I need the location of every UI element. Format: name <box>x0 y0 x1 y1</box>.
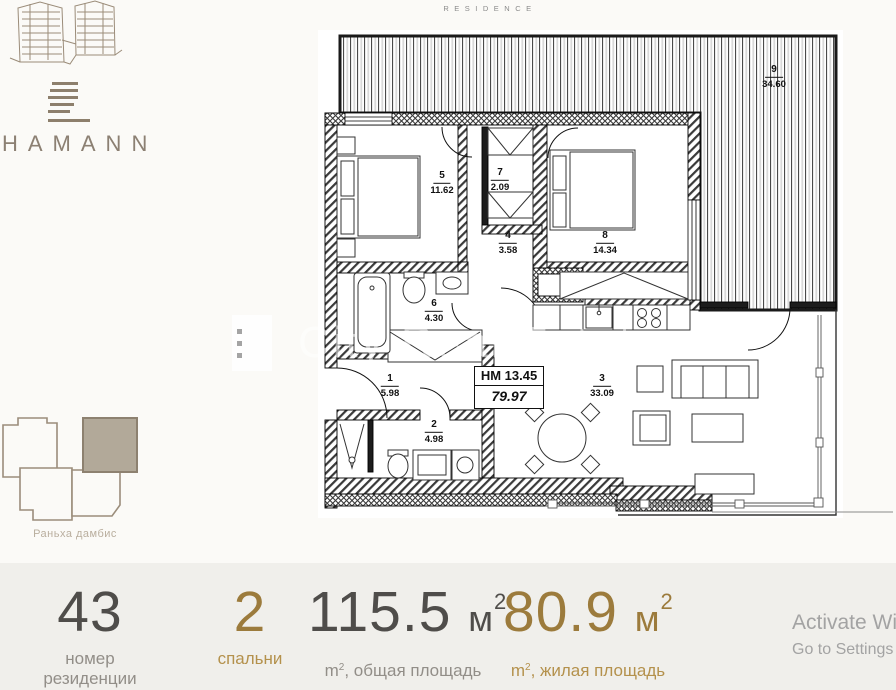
residence-label: RESIDENCE <box>380 4 600 13</box>
bedrooms-label: спальни <box>195 649 305 669</box>
room-label-3: 3 33.09 <box>590 373 614 399</box>
brand-buildings-sketch <box>0 0 130 70</box>
stat-residence-number: 43 номер резиденции <box>20 583 160 689</box>
stat-total-area: 115.5 м2 m2, общая площадь <box>308 583 498 681</box>
room-label-9: 9 34.60 <box>762 64 786 90</box>
room-label-6: 6 4.30 <box>425 298 444 324</box>
unit-label-box: HM 13.45 79.97 <box>474 366 544 409</box>
room-label-4: 4 3.58 <box>499 230 518 256</box>
stat-bedrooms: 2 спальни <box>195 583 305 669</box>
watermark-logo-icon <box>232 315 272 371</box>
site-plan-building-3 <box>72 470 120 516</box>
site-plan <box>0 408 160 528</box>
living-area-label: m2, жилая площадь <box>503 661 673 681</box>
windows-activation-watermark: Activate Win Go to Settings t <box>792 611 896 659</box>
site-plan-highlighted-unit[interactable] <box>83 418 137 472</box>
living-area-value: 80.9 м2 <box>503 583 673 653</box>
total-area-label: m2, общая площадь <box>308 661 498 681</box>
site-plan-caption: Раньха дамбис <box>0 528 150 540</box>
brand-emblem-icon <box>44 78 94 128</box>
room-label-5: 5 11.62 <box>430 170 453 196</box>
total-area-value: 115.5 м2 <box>308 583 498 653</box>
stats-bar: 43 номер резиденции 2 спальни 115.5 м2 m… <box>0 563 896 690</box>
activation-line2: Go to Settings t <box>792 641 896 659</box>
floor-plan-drawing <box>300 25 896 525</box>
brand-name: HAMANN <box>2 131 182 157</box>
bedrooms-value: 2 <box>195 583 305 641</box>
residence-number-label: номер резиденции <box>20 649 160 689</box>
site-plan-building-2 <box>20 468 72 520</box>
room-label-2: 2 4.98 <box>425 419 444 445</box>
page: { "brand": { "name": "HAMANN", "residenc… <box>0 0 896 690</box>
activation-line1: Activate Win <box>792 611 896 635</box>
room-label-7: 7 2.09 <box>491 167 510 193</box>
residence-number-value: 43 <box>20 583 160 641</box>
stat-living-area: 80.9 м2 m2, жилая площадь <box>503 583 673 681</box>
room-label-1: 1 5.98 <box>381 373 400 399</box>
room-label-8: 8 14.34 <box>593 230 617 256</box>
